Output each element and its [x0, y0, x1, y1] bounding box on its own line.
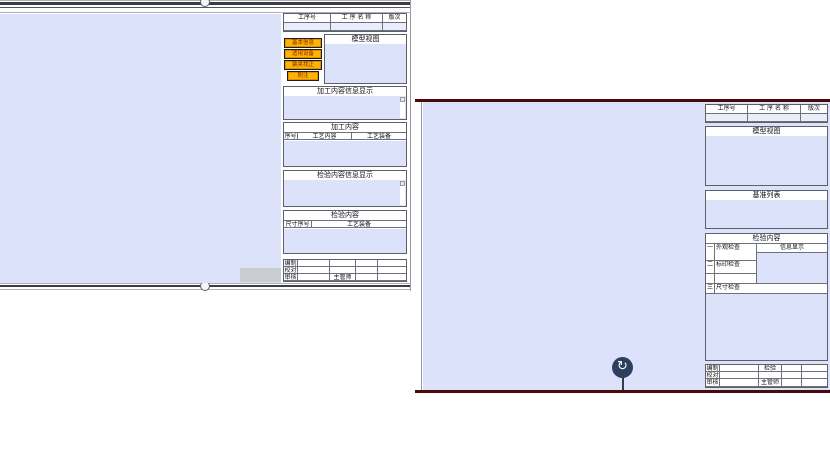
- machining-content-box: 加工内容 序号 工艺内容 工艺装备: [283, 122, 407, 167]
- signoff-cell[interactable]: [378, 274, 406, 281]
- compiled-by-label: 编制: [284, 260, 298, 267]
- dimension-check-label: 尺寸检查: [715, 284, 827, 293]
- datum-list-box: 基准列表: [705, 190, 828, 229]
- model-view-box: 模型视图: [705, 126, 828, 186]
- signoff-cell[interactable]: [802, 372, 827, 379]
- gray-placeholder-box: [240, 268, 281, 282]
- clamp-align-button[interactable]: 装夹找正: [284, 60, 322, 70]
- signoff-cell[interactable]: [330, 267, 356, 274]
- process-header-table: 工序号 工 序 名 称 版次: [283, 13, 407, 32]
- appearance-check-label: 外观检查: [715, 244, 756, 261]
- model-view-title: 模型视图: [325, 35, 406, 44]
- inspection-row2-number: 二: [706, 261, 715, 274]
- process-no-value-cell[interactable]: [706, 114, 748, 122]
- signoff-cell[interactable]: [802, 379, 827, 387]
- chief-engineer-label: 主管师: [330, 274, 356, 281]
- process-name-header: 工 序 名 称: [331, 14, 383, 23]
- signoff-cell[interactable]: [802, 365, 827, 372]
- datum-list-title: 基准列表: [706, 191, 827, 200]
- model-view-area[interactable]: [706, 136, 827, 185]
- signoff-cell[interactable]: [356, 267, 378, 274]
- signoff-cell[interactable]: [759, 372, 782, 379]
- signoff-cell[interactable]: [378, 267, 406, 274]
- revision-header: 版次: [383, 14, 406, 23]
- signoff-cell[interactable]: [298, 260, 330, 267]
- left-sheet-drawing-area[interactable]: [0, 14, 281, 283]
- signoff-cell[interactable]: [298, 274, 330, 281]
- inspection-row1-number: 一: [706, 244, 715, 261]
- process-equipment-column-header: 工艺装备: [352, 133, 406, 140]
- signoff-cell[interactable]: [782, 365, 802, 372]
- model-view-box: 模型视图: [324, 34, 407, 84]
- datum-list-area[interactable]: [706, 200, 827, 228]
- reviewed-by-label: 审核: [706, 379, 720, 387]
- inspection-title: 检验内容: [706, 234, 827, 243]
- signoff-cell[interactable]: [356, 274, 378, 281]
- right-sheet-left-edge: [421, 102, 422, 390]
- signoff-cell[interactable]: [356, 260, 378, 267]
- chief-engineer-label: 主管师: [759, 379, 782, 387]
- process-header-table: 工序号 工 序 名 称 版次: [705, 104, 828, 123]
- inspection-box: 检验内容 一 外观检查 二 标印检查 信息显示: [705, 233, 828, 361]
- machining-info-display-area[interactable]: [284, 96, 406, 119]
- scrollbar-up-button[interactable]: [400, 181, 405, 186]
- revision-value-cell[interactable]: [801, 114, 827, 122]
- inspection-info-display-area[interactable]: [284, 180, 406, 206]
- checked-by-label: 校对: [284, 267, 298, 274]
- inspection-detail-area[interactable]: [706, 294, 827, 360]
- checked-by-label: 校对: [706, 372, 720, 379]
- process-equipment-column-header: 工艺装备: [312, 221, 406, 228]
- machining-info-display-box: 加工内容信息显示: [283, 86, 407, 120]
- signoff-cell[interactable]: [720, 365, 759, 372]
- model-view-title: 模型视图: [706, 127, 827, 136]
- signoff-cell[interactable]: [782, 372, 802, 379]
- process-no-header: 工序号: [706, 105, 748, 114]
- inspection-content-area[interactable]: [284, 229, 406, 253]
- rotate-handle-stem: [622, 377, 624, 390]
- process-no-header: 工序号: [284, 14, 331, 23]
- reviewed-by-label: 审核: [284, 274, 298, 281]
- scrollbar-track[interactable]: [400, 181, 405, 205]
- process-name-value-cell[interactable]: [331, 23, 383, 31]
- inspection-content-box: 检验内容 尺寸序号 工艺装备: [283, 210, 407, 254]
- revision-header: 版次: [801, 105, 827, 114]
- info-display-area[interactable]: [757, 253, 827, 284]
- rotate-handle-icon[interactable]: ↻: [612, 357, 633, 378]
- process-name-value-cell[interactable]: [748, 114, 801, 122]
- process-no-value-cell[interactable]: [284, 23, 331, 31]
- info-display-header: 信息显示: [757, 244, 827, 253]
- revision-value-cell[interactable]: [383, 23, 406, 31]
- inspector-label: 检验: [759, 365, 782, 372]
- command-button-stack: 基本信息 适用设备 装夹找正 附注: [284, 38, 322, 84]
- signoff-cell[interactable]: [720, 372, 759, 379]
- left-sheet-template: 工序号 工 序 名 称 版次 基本信息 适用设备 装夹找正 附注 模型视图 加工…: [0, 0, 411, 291]
- right-sheet-template: 工序号 工 序 名 称 版次 模型视图 基准列表 检验内容 一 外观检查: [415, 99, 830, 394]
- process-name-header: 工 序 名 称: [748, 105, 801, 114]
- inspection-info-display-title: 检验内容信息显示: [284, 171, 406, 180]
- signoff-cell[interactable]: [720, 379, 759, 387]
- canvas: { "colors": { "panel_blue": "#dbe2fa", "…: [0, 0, 830, 467]
- signoff-cell[interactable]: [782, 379, 802, 387]
- inspection-info-display-box: 检验内容信息显示: [283, 170, 407, 207]
- scrollbar-up-button[interactable]: [400, 97, 405, 102]
- selection-handle-top[interactable]: [200, 0, 210, 7]
- inspection-row4-number: 三: [706, 284, 715, 293]
- machining-info-display-title: 加工内容信息显示: [284, 87, 406, 96]
- right-sheet-bottom-border: [415, 390, 830, 393]
- seq-no-column-header: 序号: [284, 133, 298, 140]
- marking-check-label: 标印检查: [715, 261, 756, 274]
- compiled-by-label: 编制: [706, 365, 720, 372]
- signoff-table: 编制 校对 审核 主管师: [283, 259, 407, 282]
- basic-info-button[interactable]: 基本信息: [284, 38, 322, 48]
- left-sheet-top-border: [0, 7, 410, 8]
- applicable-equipment-button[interactable]: 适用设备: [284, 49, 322, 59]
- signoff-cell[interactable]: [330, 260, 356, 267]
- machining-content-area[interactable]: [284, 141, 406, 166]
- dimension-no-column-header: 尺寸序号: [284, 221, 312, 228]
- process-content-column-header: 工艺内容: [298, 133, 352, 140]
- signoff-cell[interactable]: [298, 267, 330, 274]
- notes-button[interactable]: 附注: [287, 71, 319, 81]
- scrollbar-track[interactable]: [400, 97, 405, 118]
- signoff-cell[interactable]: [378, 260, 406, 267]
- model-view-area[interactable]: [325, 44, 406, 83]
- machining-content-title: 加工内容: [284, 123, 406, 132]
- inspection-content-title: 检验内容: [284, 211, 406, 220]
- signoff-table: 编制 检验 校对 审核 主管师: [705, 364, 828, 388]
